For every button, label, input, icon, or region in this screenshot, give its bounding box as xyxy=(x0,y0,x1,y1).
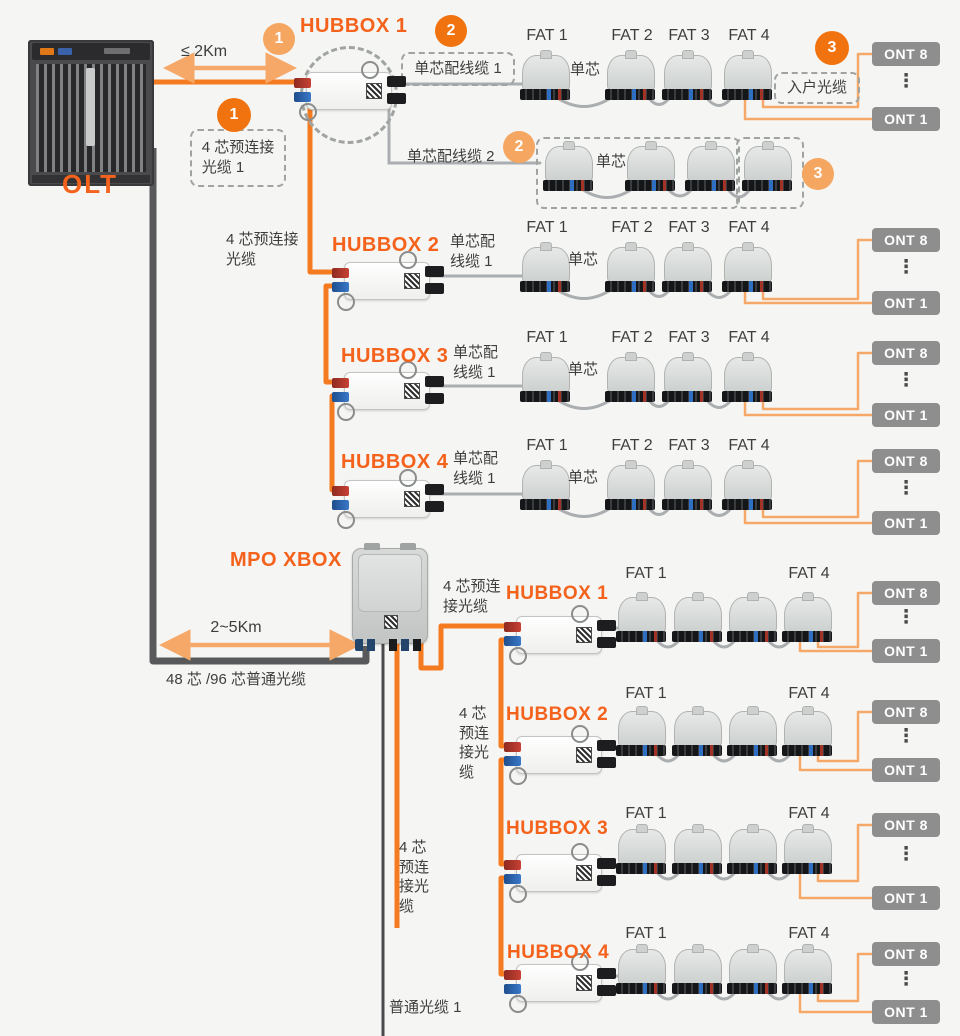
blue-port xyxy=(332,392,349,402)
fat1-label: FAT 1 xyxy=(616,805,676,823)
mpo-xbox-device xyxy=(352,548,428,644)
black-port xyxy=(387,76,406,87)
ont-box: ONT 1 xyxy=(872,886,940,910)
label-home-cable: 入户光缆 xyxy=(774,72,860,104)
fat-device xyxy=(607,465,655,501)
badge-step3-light: 3 xyxy=(802,158,834,190)
ont-box: ONT 8 xyxy=(872,813,940,837)
fat2-label: FAT 2 xyxy=(602,219,662,237)
label-preconnect-cable: 4 芯 预连 接光 缆 xyxy=(399,838,429,916)
fat-device xyxy=(618,829,666,865)
fat2-label: FAT 2 xyxy=(602,437,662,455)
red-port xyxy=(504,622,521,632)
black-port xyxy=(597,985,616,996)
fat-device xyxy=(729,597,777,633)
badge-step3-dark: 3 xyxy=(815,31,849,65)
black-port xyxy=(425,376,444,387)
label-drop-cable: 单芯配 线缆 1 xyxy=(453,343,498,382)
ont-box: ONT 8 xyxy=(872,341,940,365)
blue-port xyxy=(332,500,349,510)
fiber-loop xyxy=(509,647,527,665)
fat-device xyxy=(729,949,777,985)
black-port xyxy=(597,637,616,648)
ont-box: ONT 1 xyxy=(872,107,940,131)
ont-ellipsis: ⋮ xyxy=(896,606,916,629)
black-port xyxy=(597,875,616,886)
badge-step2-dark: 2 xyxy=(435,15,467,47)
black-port xyxy=(425,393,444,404)
fat1-label: FAT 1 xyxy=(517,219,577,237)
fat1-label: FAT 1 xyxy=(616,685,676,703)
ont-box: ONT 8 xyxy=(872,942,940,966)
red-port xyxy=(504,860,521,870)
black-port xyxy=(597,968,616,979)
fat-device xyxy=(607,247,655,283)
fat1-label: FAT 1 xyxy=(616,565,676,583)
mount-clip xyxy=(364,543,380,550)
port-row xyxy=(355,639,425,651)
odn-topology-diagram: OLT ≤ 2Km 1 HUBBOX 1 1 4 芯预连接 光缆 1 2 单芯配… xyxy=(0,0,960,1036)
hubbox4-bottom-device xyxy=(516,964,602,1002)
fat1-label: FAT 1 xyxy=(517,437,577,455)
blue-port xyxy=(504,984,521,994)
qr-code xyxy=(576,865,592,881)
fiber-loop xyxy=(571,843,589,861)
fat3-label: FAT 3 xyxy=(659,329,719,347)
hubbox4-bottom-title: HUBBOX 4 xyxy=(507,942,609,964)
single-core-label: 单芯 xyxy=(570,60,600,80)
black-port xyxy=(597,858,616,869)
hubbox4-top-title: HUBBOX 4 xyxy=(341,451,448,474)
label-trunk-cable: 48 芯 /96 芯普通光缆 xyxy=(166,670,306,690)
fat-device xyxy=(724,247,772,283)
olt-control-card xyxy=(86,68,95,146)
ont-ellipsis: ⋮ xyxy=(896,968,916,991)
black-port xyxy=(425,501,444,512)
fat4-label: FAT 4 xyxy=(719,219,779,237)
fat-device xyxy=(744,146,792,182)
fat-device xyxy=(784,829,832,865)
fat-device xyxy=(724,55,772,91)
distance-label-2-5km: 2~5Km xyxy=(196,618,276,639)
fat-device xyxy=(664,247,712,283)
fiber-loop xyxy=(571,605,589,623)
fat3-label: FAT 3 xyxy=(659,437,719,455)
label-drop-cable: 单芯配 线缆 1 xyxy=(450,232,495,271)
ont-box: ONT 1 xyxy=(872,511,940,535)
hubbox3-top-title: HUBBOX 3 xyxy=(341,345,448,368)
qr-code xyxy=(576,975,592,991)
black-port xyxy=(597,620,616,631)
fiber-loop xyxy=(337,511,355,529)
fat4-label: FAT 4 xyxy=(779,925,839,943)
fat3-label: FAT 3 xyxy=(659,27,719,45)
ont-box: ONT 8 xyxy=(872,581,940,605)
fat-device xyxy=(522,465,570,501)
red-port xyxy=(504,742,521,752)
blue-port xyxy=(504,874,521,884)
label-preconnect-cable-1: 4 芯预连接 光缆 1 xyxy=(190,129,286,187)
fat1-label: FAT 1 xyxy=(616,925,676,943)
fat-device xyxy=(522,55,570,91)
hubbox2-bottom-device xyxy=(516,736,602,774)
fat1-label: FAT 1 xyxy=(517,27,577,45)
red-port xyxy=(332,378,349,388)
fat-device xyxy=(674,829,722,865)
fiber-loop xyxy=(361,61,379,79)
ont-ellipsis: ⋮ xyxy=(896,843,916,866)
hubbox1-bottom-title: HUBBOX 1 xyxy=(506,583,608,605)
fat4-label: FAT 4 xyxy=(779,685,839,703)
badge-step2-light: 2 xyxy=(503,131,535,163)
blue-port xyxy=(504,636,521,646)
mpo-xbox-title: MPO XBOX xyxy=(230,549,342,572)
fiber-loop xyxy=(299,103,317,121)
fat-device xyxy=(724,465,772,501)
front-panel xyxy=(358,554,422,612)
blue-port xyxy=(332,282,349,292)
red-port xyxy=(294,78,311,88)
black-port xyxy=(597,740,616,751)
fat4-label: FAT 4 xyxy=(779,565,839,583)
fat-device xyxy=(784,597,832,633)
hubbox1-bottom-device xyxy=(516,616,602,654)
preconnect-cables-bottom xyxy=(397,626,514,974)
fat-device xyxy=(618,949,666,985)
single-core-label: 单芯 xyxy=(568,360,598,380)
black-port xyxy=(597,757,616,768)
ont-ellipsis: ⋮ xyxy=(896,256,916,279)
hubbox3-top-device xyxy=(344,372,430,410)
qr-code xyxy=(384,615,398,629)
fat-device xyxy=(522,247,570,283)
hubbox3-bottom-title: HUBBOX 3 xyxy=(506,818,608,840)
ont-ellipsis: ⋮ xyxy=(896,477,916,500)
red-port xyxy=(332,268,349,278)
label-preconnect-cable: 4 芯预连接 光缆 xyxy=(226,230,299,269)
fat-device xyxy=(687,146,735,182)
mount-clip xyxy=(400,543,416,550)
label-drop-cable-1: 单芯配线缆 1 xyxy=(401,52,515,86)
hubbox2-bottom-title: HUBBOX 2 xyxy=(506,704,608,726)
fat-device xyxy=(674,597,722,633)
olt-label: OLT xyxy=(30,168,150,202)
olt-top-panel xyxy=(32,43,150,60)
fiber-loop xyxy=(571,725,589,743)
label-drop-cable-2: 单芯配线缆 2 xyxy=(407,147,495,167)
qr-code xyxy=(576,627,592,643)
qr-code xyxy=(404,273,420,289)
red-port xyxy=(504,970,521,980)
ont-ellipsis: ⋮ xyxy=(896,369,916,392)
ont-box: ONT 1 xyxy=(872,403,940,427)
ont-box: ONT 8 xyxy=(872,449,940,473)
fat-device xyxy=(522,357,570,393)
fat-device xyxy=(664,465,712,501)
fat-device xyxy=(664,357,712,393)
hubbox3-bottom-device xyxy=(516,854,602,892)
fat2-label: FAT 2 xyxy=(602,329,662,347)
fat-device xyxy=(674,711,722,747)
ont-box: ONT 1 xyxy=(872,639,940,663)
fiber-loop xyxy=(509,995,527,1013)
fat4-label: FAT 4 xyxy=(719,27,779,45)
fiber-loop xyxy=(337,293,355,311)
hubbox4-top-device xyxy=(344,480,430,518)
fat-device xyxy=(545,146,593,182)
fat1-label: FAT 1 xyxy=(517,329,577,347)
fat-device xyxy=(784,949,832,985)
single-core-label: 单芯 xyxy=(596,152,626,172)
label-ordinary-cable: 普通光缆 1 xyxy=(389,998,462,1018)
fat-device xyxy=(729,829,777,865)
ont-box: ONT 1 xyxy=(872,758,940,782)
fiber-loop xyxy=(509,885,527,903)
fat-device xyxy=(607,357,655,393)
label-drop-cable: 单芯配 线缆 1 xyxy=(453,449,498,488)
blue-port xyxy=(294,92,311,102)
ont-ellipsis: ⋮ xyxy=(896,725,916,748)
label-preconnect-cable: 4 芯预连 接光缆 xyxy=(443,577,501,616)
ont-box: ONT 1 xyxy=(872,291,940,315)
fat4-label: FAT 4 xyxy=(719,329,779,347)
ont-box: ONT 8 xyxy=(872,700,940,724)
fat4-label: FAT 4 xyxy=(719,437,779,455)
fat-device xyxy=(607,55,655,91)
fat-device xyxy=(664,55,712,91)
qr-code xyxy=(576,747,592,763)
fat-device xyxy=(618,597,666,633)
fat-device xyxy=(724,357,772,393)
badge-step1-light: 1 xyxy=(263,23,295,55)
single-core-label: 单芯 xyxy=(568,250,598,270)
fat4-label: FAT 4 xyxy=(779,805,839,823)
black-port xyxy=(425,484,444,495)
distance-label-2km: ≤ 2Km xyxy=(168,42,240,63)
black-port xyxy=(425,266,444,277)
qr-code xyxy=(404,383,420,399)
fat-device xyxy=(618,711,666,747)
fiber-loop xyxy=(337,403,355,421)
black-port xyxy=(387,93,406,104)
olt-device xyxy=(28,40,154,186)
single-core-label: 单芯 xyxy=(568,468,598,488)
fiber-loop xyxy=(509,767,527,785)
ont-ellipsis: ⋮ xyxy=(896,70,916,93)
hubbox2-top-device xyxy=(344,262,430,300)
ont-box: ONT 8 xyxy=(872,228,940,252)
label-preconnect-cable: 4 芯 预连 接光 缆 xyxy=(459,704,489,782)
black-port xyxy=(425,283,444,294)
hubbox2-top-title: HUBBOX 2 xyxy=(332,234,439,257)
qr-code xyxy=(404,491,420,507)
ont-box: ONT 8 xyxy=(872,42,940,66)
red-port xyxy=(332,486,349,496)
hubbox1-top-device xyxy=(306,72,392,110)
ont-box: ONT 1 xyxy=(872,1000,940,1024)
fat-device xyxy=(784,711,832,747)
fat-device xyxy=(674,949,722,985)
qr-code xyxy=(366,83,382,99)
hubbox1-top-title: HUBBOX 1 xyxy=(300,15,407,38)
fat3-label: FAT 3 xyxy=(659,219,719,237)
fat-device xyxy=(729,711,777,747)
blue-port xyxy=(504,756,521,766)
fat-device xyxy=(627,146,675,182)
badge-step1-dark: 1 xyxy=(217,98,251,132)
fat2-label: FAT 2 xyxy=(602,27,662,45)
